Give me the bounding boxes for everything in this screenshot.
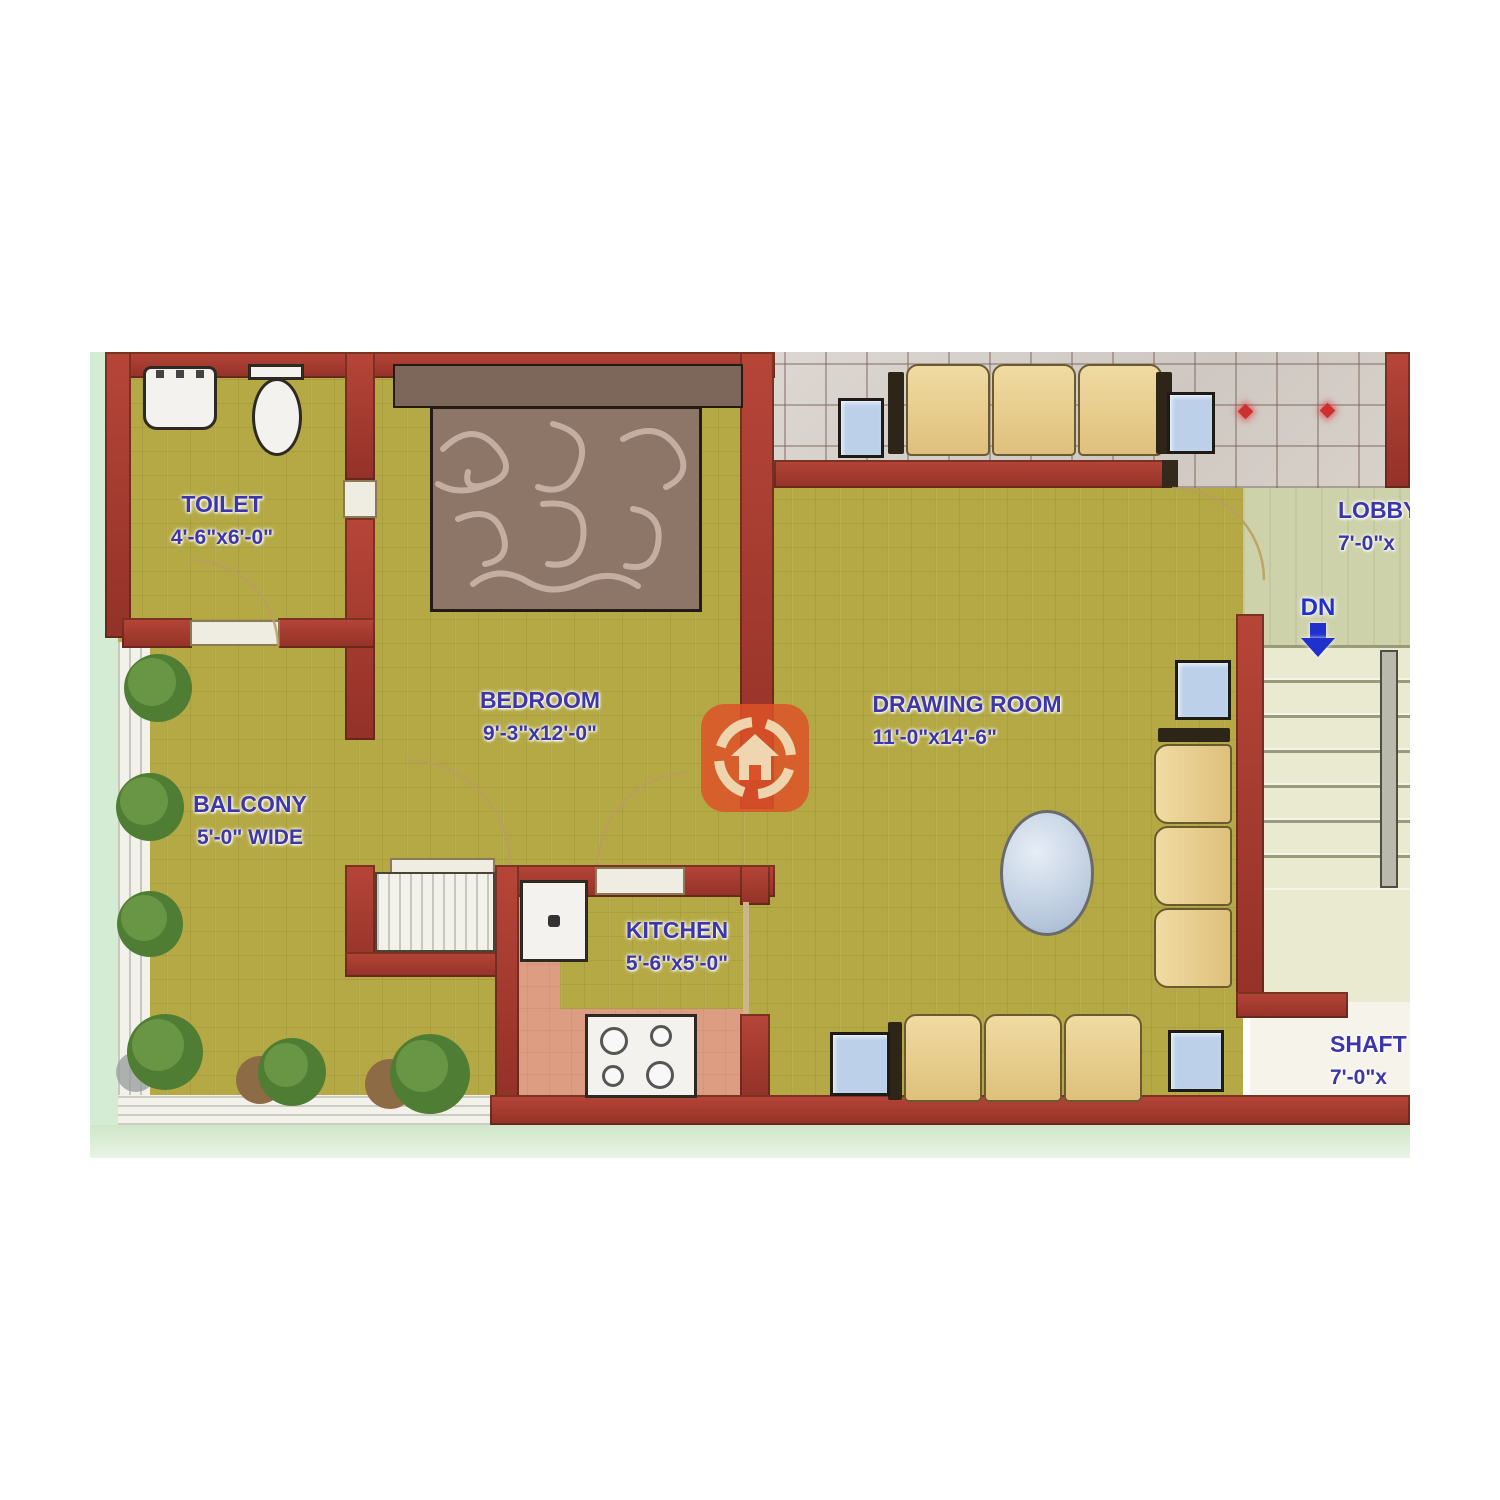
trees [116, 654, 470, 1114]
floor-plan-image: TOILET 4'-6"x6'-0" BEDROOM 9'-3"x12'-0" … [0, 0, 1500, 1500]
kitchen-name: KITCHEN [626, 914, 728, 947]
bush-icon [365, 1034, 470, 1114]
lobby-name: LOBBY [1338, 494, 1410, 527]
balcony-label: BALCONY 5'-0" WIDE [193, 788, 307, 854]
tree-icon [124, 654, 192, 722]
drawing-room-label: DRAWING ROOM 11'-0"x14'-6" [872, 688, 1061, 754]
dn-label: DN [1288, 594, 1348, 622]
tree-icon [117, 891, 183, 957]
stairs-dn-marker: DN [1288, 594, 1348, 657]
lobby-dims: 7'-0"x [1338, 527, 1410, 560]
kitchen-dims: 5'-6"x5'-0" [626, 947, 728, 980]
lobby-label: LOBBY 7'-0"x [1338, 494, 1410, 560]
house-target-logo-icon [699, 702, 811, 814]
tree-icon [116, 773, 184, 841]
toilet-label: TOILET 4'-6"x6'-0" [171, 488, 273, 554]
down-arrow-icon [1288, 623, 1348, 657]
balcony-dims: 5'-0" WIDE [193, 821, 307, 854]
drawing-room-name: DRAWING ROOM [872, 688, 1061, 721]
shaft-dims: 7'-0"x [1330, 1061, 1407, 1094]
kitchen-label: KITCHEN 5'-6"x5'-0" [626, 914, 728, 980]
drawing-room-dims: 11'-0"x14'-6" [872, 721, 1061, 754]
toilet-name: TOILET [171, 488, 273, 521]
bedroom-dims: 9'-3"x12'-0" [480, 717, 600, 750]
bedroom-name: BEDROOM [480, 684, 600, 717]
shaft-name: SHAFT [1330, 1028, 1407, 1061]
bedroom-label: BEDROOM 9'-3"x12'-0" [480, 684, 600, 750]
tree-icon [127, 1014, 203, 1090]
floor-plan: TOILET 4'-6"x6'-0" BEDROOM 9'-3"x12'-0" … [90, 352, 1410, 1158]
toilet-dims: 4'-6"x6'-0" [171, 521, 273, 554]
balcony-name: BALCONY [193, 788, 307, 821]
bush-icon [236, 1038, 326, 1106]
shaft-label: SHAFT 7'-0"x [1330, 1028, 1407, 1094]
